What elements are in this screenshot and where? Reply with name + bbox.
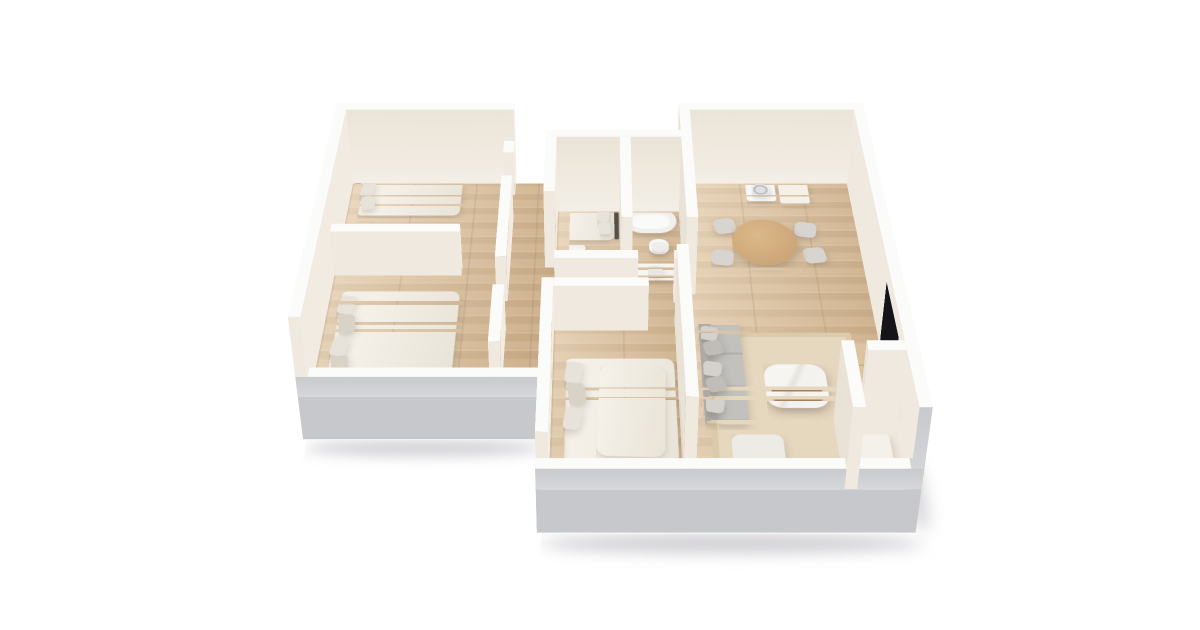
wall-bath-west-top xyxy=(620,137,633,217)
sink-basin xyxy=(648,266,663,277)
washer-door xyxy=(751,184,770,196)
slab-front-main xyxy=(536,489,922,532)
wall-north-right-south xyxy=(677,110,864,184)
bed-headboard xyxy=(614,209,619,240)
wall-divider-left-rooms-south xyxy=(330,231,462,275)
slab-front-left xyxy=(298,397,541,439)
wall-front-main-south xyxy=(535,469,924,489)
sofa-pillow xyxy=(704,396,726,414)
wall-center-south-a-top xyxy=(554,250,638,258)
wall-front-left-south xyxy=(295,377,539,397)
throw-duvet xyxy=(596,365,666,457)
floorplan xyxy=(278,176,921,489)
wall-divider-left-rooms-top xyxy=(330,224,460,232)
bed-pillow xyxy=(339,314,356,334)
wall-north-left-top xyxy=(336,103,515,110)
wall-center-back-top xyxy=(546,130,692,137)
coffee-table xyxy=(763,364,831,408)
wall-front-left-top xyxy=(295,367,539,376)
ground-shadow xyxy=(303,440,544,456)
wall-front-main-top xyxy=(535,458,924,469)
floorplan-render xyxy=(0,0,1200,630)
wall-bb-north-top xyxy=(553,277,649,285)
sofa-pillow xyxy=(702,360,723,377)
bed-pillow xyxy=(598,222,611,235)
dining-chair xyxy=(711,249,735,266)
toilet-lid xyxy=(652,242,667,252)
bed-pillow xyxy=(361,196,374,210)
bed-pillow xyxy=(567,383,587,406)
wall-bb-north-south xyxy=(553,286,649,331)
wall-nook-north-top xyxy=(867,340,907,350)
ground-shadow xyxy=(540,534,924,554)
cabinet xyxy=(777,181,810,203)
dining-chair xyxy=(794,221,817,238)
wall-north-right-top xyxy=(679,103,865,110)
wall-north-left-south xyxy=(336,110,516,184)
bed-pillow xyxy=(597,210,610,223)
